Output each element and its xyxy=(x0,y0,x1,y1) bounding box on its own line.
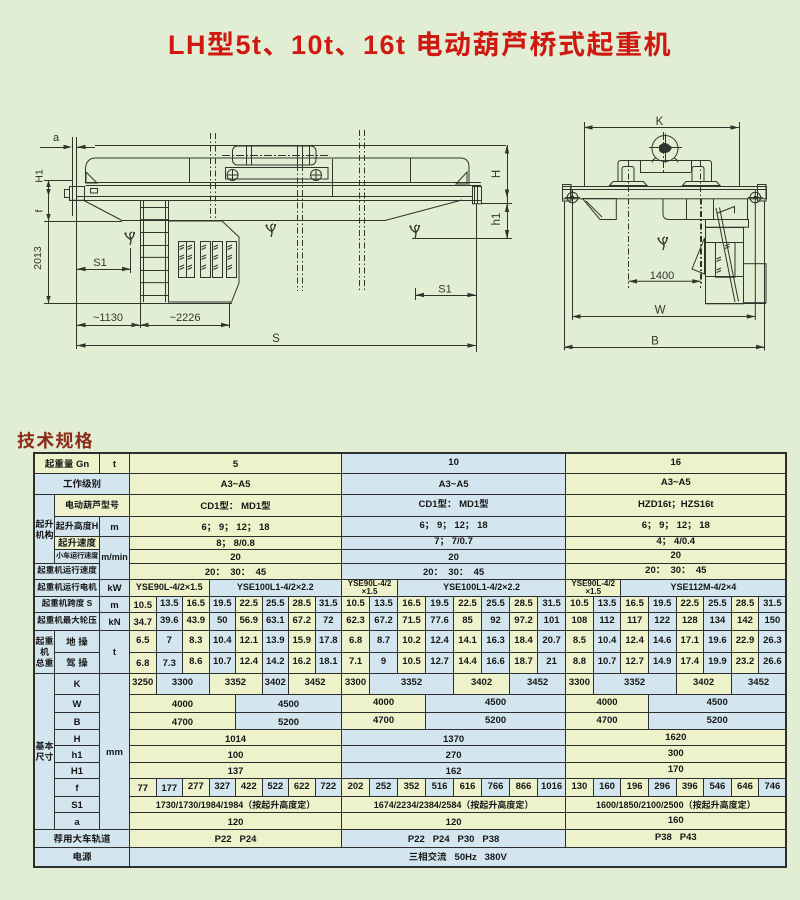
svg-text:f: f xyxy=(34,209,46,212)
svg-text:S1: S1 xyxy=(438,284,451,296)
svg-text:B: B xyxy=(651,336,659,348)
svg-text:2013: 2013 xyxy=(32,246,44,270)
svg-text:~1130: ~1130 xyxy=(93,312,123,324)
svg-text:K: K xyxy=(656,116,664,128)
svg-text:H1: H1 xyxy=(34,169,46,183)
svg-text:H: H xyxy=(491,170,503,178)
svg-text:1400: 1400 xyxy=(650,270,674,282)
svg-text:S1: S1 xyxy=(93,257,106,269)
svg-text:a: a xyxy=(53,132,60,144)
svg-text:W: W xyxy=(655,305,666,317)
svg-text:S: S xyxy=(272,333,280,345)
svg-text:h1: h1 xyxy=(491,213,503,226)
svg-text:~2226: ~2226 xyxy=(170,312,201,324)
